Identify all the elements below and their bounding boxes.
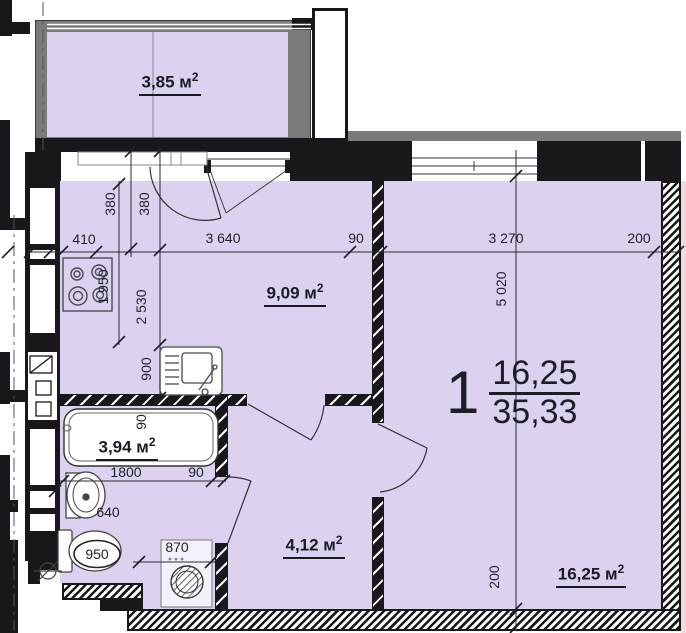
dim-90-bath-v: 90 bbox=[133, 408, 149, 436]
apartment-living-area: 16,25 bbox=[489, 356, 580, 395]
apartment-area-fraction: 16,25 35,33 bbox=[489, 356, 580, 430]
dim-870: 870 bbox=[157, 539, 197, 555]
dim-3640: 3 640 bbox=[193, 230, 253, 246]
dim-200-top: 200 bbox=[621, 230, 657, 246]
dim-5020: 5 020 bbox=[493, 261, 509, 317]
axis-lines bbox=[14, 2, 43, 631]
apartment-label: 1 16,25 35,33 bbox=[446, 356, 580, 430]
floor-plan: 410 3 640 90 3 270 200 380 380 1 950 2 5… bbox=[0, 0, 686, 633]
door-swing-bathroom bbox=[228, 477, 251, 543]
dim-1800: 1800 bbox=[96, 464, 156, 480]
area-label-kitchen: 9,09 м2 bbox=[243, 281, 347, 307]
dim-90-bath: 90 bbox=[182, 464, 210, 480]
dim-640: 640 bbox=[88, 504, 128, 520]
living-room-window bbox=[412, 158, 537, 174]
vent-shaft-icon bbox=[30, 356, 52, 416]
area-label-living-room: 16,25 м2 bbox=[534, 562, 648, 588]
area-label-bathroom: 3,94 м2 bbox=[75, 435, 179, 461]
door-swing-kitchen-hall bbox=[248, 404, 324, 440]
dim-200-right: 200 bbox=[486, 559, 502, 595]
dim-2530: 2 530 bbox=[133, 279, 149, 335]
dim-380-b: 380 bbox=[136, 182, 152, 226]
dim-90-top: 90 bbox=[342, 230, 370, 246]
balcony-threshold bbox=[78, 152, 207, 165]
dim-3270: 3 270 bbox=[476, 230, 536, 246]
door-swing-balcony bbox=[150, 166, 221, 220]
dim-380-a: 380 bbox=[102, 182, 118, 226]
door-swing-living-room bbox=[378, 424, 427, 492]
dim-900: 900 bbox=[138, 347, 154, 391]
dim-950: 950 bbox=[75, 546, 119, 562]
dim-410: 410 bbox=[66, 231, 102, 247]
apartment-total-area: 35,33 bbox=[489, 395, 580, 431]
apartment-rooms-count: 1 bbox=[446, 363, 479, 423]
area-label-balcony: 3,85 м2 bbox=[118, 70, 222, 96]
kitchen-sink-icon bbox=[160, 347, 222, 395]
dim-1950: 1 950 bbox=[95, 259, 111, 315]
area-label-hallway: 4,12 м2 bbox=[262, 533, 366, 559]
